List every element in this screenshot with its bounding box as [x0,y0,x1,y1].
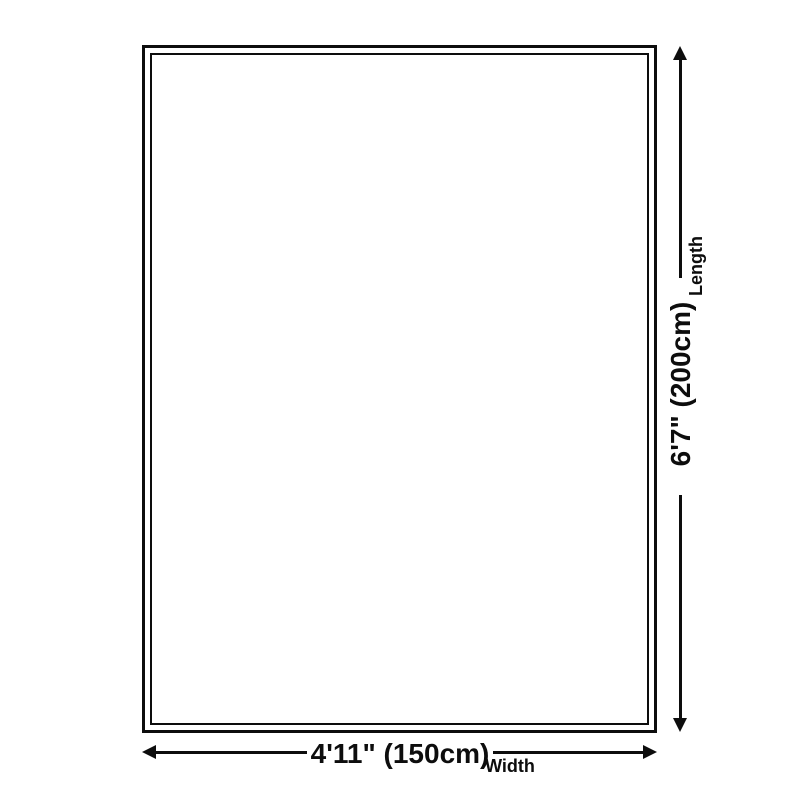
length-dimension-line-bottom [679,495,682,722]
length-value: 6'7" (200cm) [667,302,695,467]
width-value: 4'11" (150cm) [311,740,490,768]
width-dimension-line-right [493,751,647,754]
length-label: Length [687,236,705,296]
width-dimension-line-left [152,751,307,754]
arrow-right-icon [643,745,657,759]
product-outline [142,45,657,733]
size-diagram: 6'7" (200cm) Length 4'11" (150cm) Width [0,0,800,800]
product-outline-inner-border [150,53,649,725]
width-label: Width [485,757,535,775]
length-dimension-line-top [679,56,682,278]
arrow-down-icon [673,718,687,732]
